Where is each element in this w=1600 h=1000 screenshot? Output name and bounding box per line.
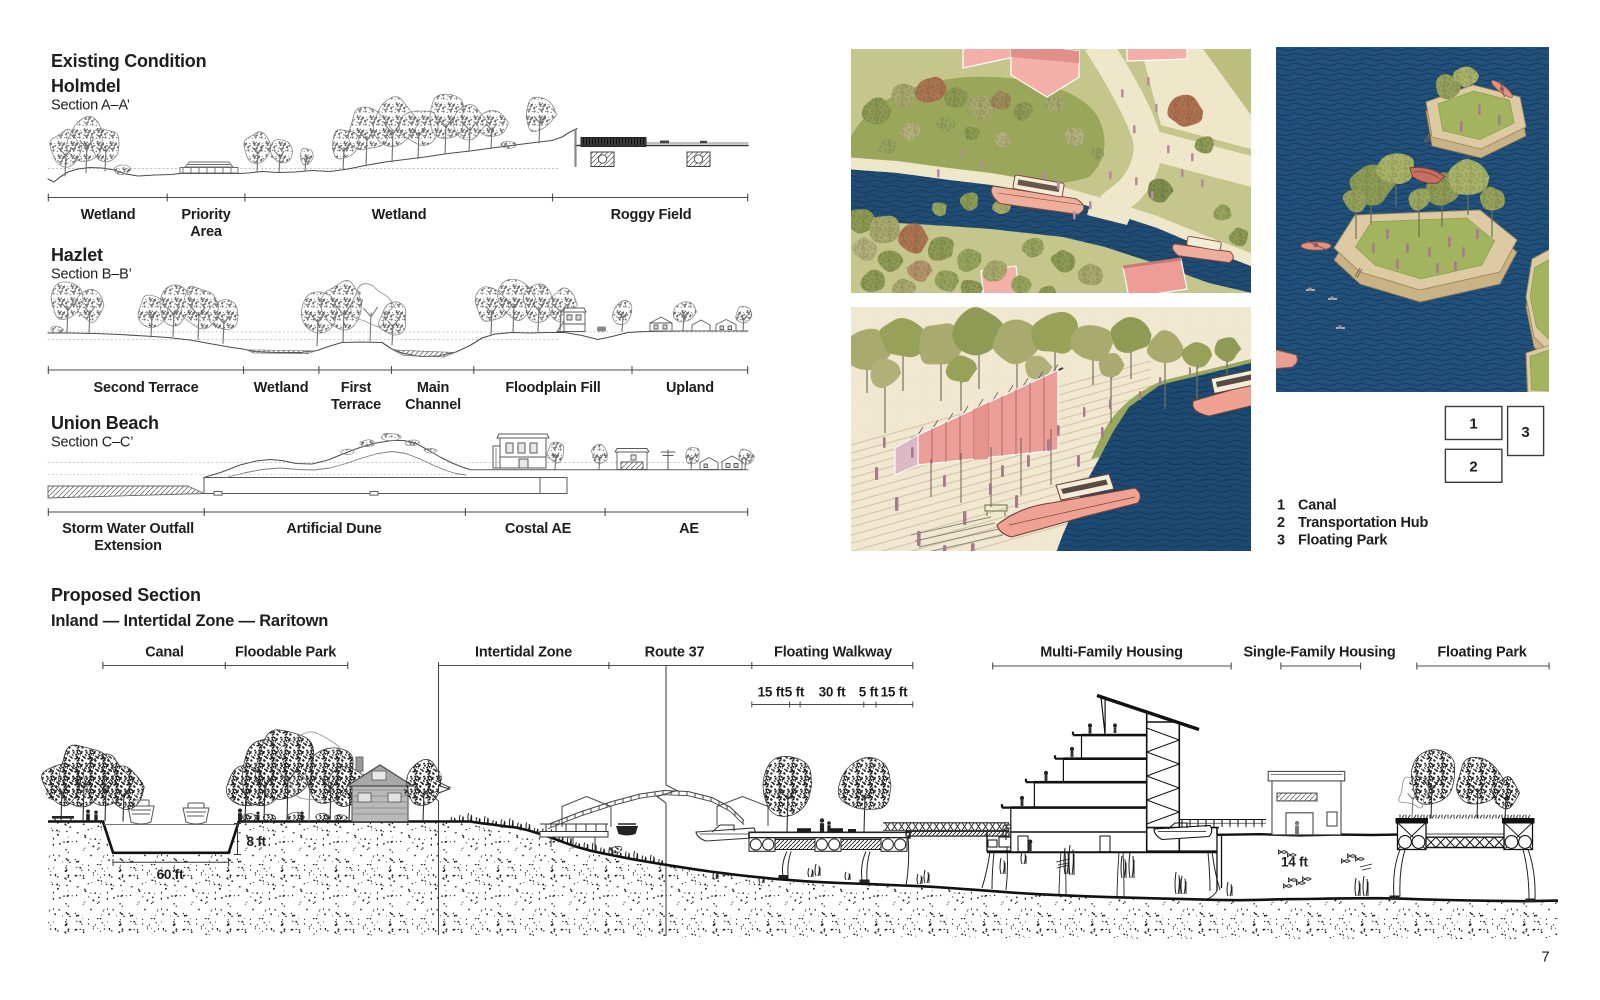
svg-text:Inland — Intertidal Zone — Rar: Inland — Intertidal Zone — Raritown — [51, 612, 328, 630]
svg-text:Priority: Priority — [181, 207, 230, 223]
svg-text:60 ft: 60 ft — [157, 867, 184, 882]
svg-text:Floating Park: Floating Park — [1437, 645, 1527, 661]
svg-text:1: 1 — [1469, 416, 1477, 433]
svg-text:AE: AE — [679, 521, 699, 537]
svg-text:Section C–C’: Section C–C’ — [51, 435, 133, 451]
svg-text:Canal: Canal — [1298, 498, 1337, 514]
svg-text:1: 1 — [1277, 498, 1285, 514]
svg-text:3: 3 — [1277, 533, 1285, 549]
svg-text:Floodplain Fill: Floodplain Fill — [505, 380, 600, 396]
svg-text:Single-Family Housing: Single-Family Housing — [1243, 645, 1395, 661]
svg-text:Artificial Dune: Artificial Dune — [286, 521, 381, 537]
svg-text:5 ft: 5 ft — [859, 685, 879, 700]
svg-text:30 ft: 30 ft — [819, 685, 846, 700]
svg-text:Canal: Canal — [145, 645, 184, 661]
svg-text:Proposed Section: Proposed Section — [51, 585, 201, 605]
svg-text:5 ft: 5 ft — [785, 685, 805, 700]
svg-text:Second Terrace: Second Terrace — [94, 380, 199, 396]
svg-text:Extension: Extension — [94, 538, 162, 554]
svg-text:7: 7 — [1541, 949, 1549, 966]
svg-text:Section A–A’: Section A–A’ — [51, 98, 130, 114]
svg-text:Roggy Field: Roggy Field — [611, 207, 692, 223]
svg-text:Costal AE: Costal AE — [505, 521, 572, 537]
svg-text:2: 2 — [1277, 515, 1285, 531]
svg-text:8 ft: 8 ft — [247, 834, 267, 849]
svg-text:Floating Park: Floating Park — [1298, 533, 1388, 549]
svg-text:Wetland: Wetland — [254, 380, 309, 396]
svg-text:Floodable Park: Floodable Park — [235, 645, 337, 661]
svg-text:Union Beach: Union Beach — [51, 413, 159, 433]
svg-text:15 ft: 15 ft — [881, 685, 908, 700]
svg-text:Area: Area — [190, 224, 223, 240]
svg-text:3: 3 — [1521, 424, 1529, 441]
svg-text:Section B–B’: Section B–B’ — [51, 267, 132, 283]
svg-text:Holmdel: Holmdel — [51, 76, 121, 96]
svg-text:2: 2 — [1469, 459, 1477, 476]
svg-text:Floating Walkway: Floating Walkway — [774, 645, 892, 661]
svg-text:Wetland: Wetland — [81, 207, 136, 223]
svg-text:Route 37: Route 37 — [645, 645, 705, 661]
svg-text:Terrace: Terrace — [331, 397, 381, 413]
svg-text:Intertidal Zone: Intertidal Zone — [475, 645, 572, 661]
svg-text:First: First — [341, 380, 372, 396]
svg-text:Channel: Channel — [405, 397, 461, 413]
svg-text:Main: Main — [417, 380, 449, 396]
svg-text:Multi-Family Housing: Multi-Family Housing — [1040, 645, 1183, 661]
svg-text:Transportation Hub: Transportation Hub — [1298, 515, 1428, 531]
svg-text:Upland: Upland — [666, 380, 714, 396]
svg-text:Hazlet: Hazlet — [51, 245, 103, 265]
svg-text:Existing Condition: Existing Condition — [51, 51, 206, 71]
svg-text:Wetland: Wetland — [372, 207, 427, 223]
svg-text:15 ft: 15 ft — [758, 685, 785, 700]
svg-text:14 ft: 14 ft — [1281, 855, 1308, 870]
svg-text:Storm Water Outfall: Storm Water Outfall — [62, 521, 194, 537]
